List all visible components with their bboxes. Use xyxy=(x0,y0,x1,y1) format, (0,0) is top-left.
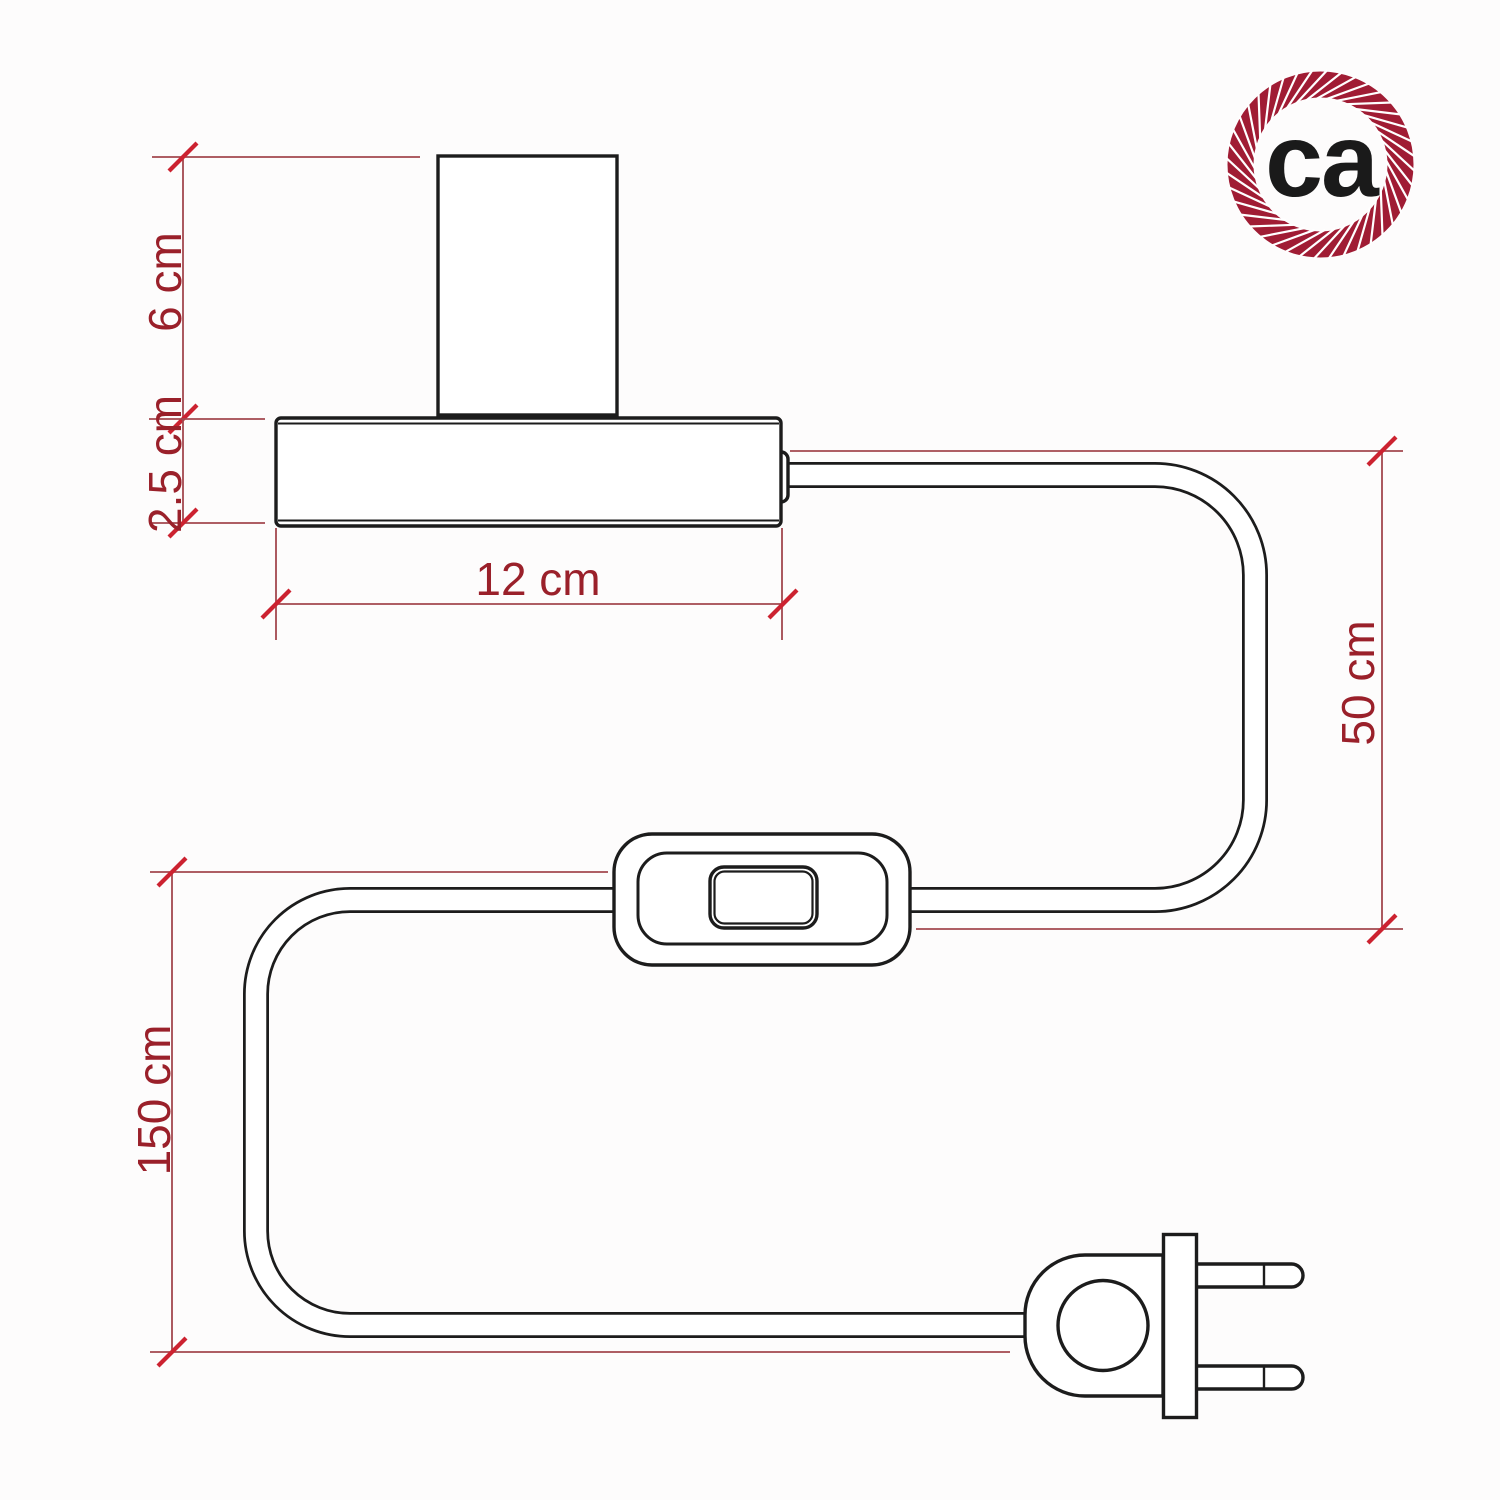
svg-text:50 cm: 50 cm xyxy=(1332,620,1384,745)
svg-text:150 cm: 150 cm xyxy=(128,1025,180,1176)
svg-text:2.5 cm: 2.5 cm xyxy=(139,395,191,533)
svg-text:12 cm: 12 cm xyxy=(475,553,600,605)
svg-text:ca: ca xyxy=(1265,103,1380,219)
svg-text:6 cm: 6 cm xyxy=(139,232,191,332)
